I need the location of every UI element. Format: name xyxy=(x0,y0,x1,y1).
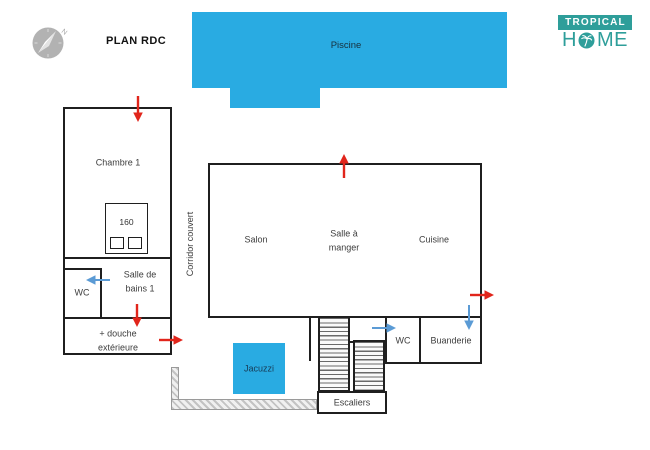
room-label-buanderie: Buanderie xyxy=(430,334,471,348)
room-label-wc2: WC xyxy=(396,334,411,348)
page-title: PLAN RDC xyxy=(106,35,166,47)
room-label-salon: Salon xyxy=(244,233,267,247)
room-label-corridor: Corridor couvert xyxy=(185,194,195,294)
flow-arrow-wc1-left xyxy=(86,274,110,286)
stair-flight-left xyxy=(318,316,350,392)
room-label-chambre1: Chambre 1 xyxy=(96,156,141,170)
stair-flight-right xyxy=(353,340,385,392)
wall-douche-top xyxy=(63,317,172,319)
jacuzzi-label: Jacuzzi xyxy=(244,362,274,376)
entrance-arrow-main-up xyxy=(338,154,350,178)
pool-label: Piscine xyxy=(331,39,362,53)
entrance-arrow-sdb-douche-down xyxy=(131,304,143,327)
deck-strip-horizontal xyxy=(171,399,317,410)
wall-stair-stub xyxy=(309,318,311,361)
brand-home-text: H ME xyxy=(554,30,636,50)
room-label-escaliers: Escaliers xyxy=(334,396,371,410)
room-label-salle-a-manger: Salle à manger xyxy=(329,228,360,255)
pillow-left xyxy=(110,237,124,249)
room-label-salle-de-bains: Salle de bains 1 xyxy=(124,269,157,296)
brand-top-text: TROPICAL xyxy=(558,15,632,30)
pillow-right xyxy=(128,237,142,249)
deck-strip-vertical xyxy=(171,367,179,401)
brand-home-h: H xyxy=(562,30,577,50)
brand-home-me: ME xyxy=(597,30,628,50)
bed: 160 xyxy=(105,203,148,254)
pool-notch xyxy=(230,88,320,108)
entrance-arrow-main-right xyxy=(470,289,494,301)
room-label-cuisine: Cuisine xyxy=(419,233,449,247)
room-label-wc1: WC xyxy=(75,286,90,300)
brand-logo: TROPICAL H ME xyxy=(554,12,636,50)
compass-icon: N xyxy=(29,22,71,64)
bed-size-label: 160 xyxy=(119,217,133,227)
flow-arrow-wc2-right xyxy=(372,322,396,334)
entrance-arrow-douche-right xyxy=(159,334,183,346)
entrance-arrow-chambre1-down xyxy=(132,96,144,122)
room-label-douche: + douche extérieure xyxy=(98,328,138,355)
palm-tree-icon xyxy=(578,32,595,49)
floor-plan: N /* bind N after load via data-bind bel… xyxy=(0,0,650,450)
wall-chambre-bottom xyxy=(63,257,172,259)
flow-arrow-buanderie-down xyxy=(463,305,475,330)
stair-connector xyxy=(348,341,355,343)
